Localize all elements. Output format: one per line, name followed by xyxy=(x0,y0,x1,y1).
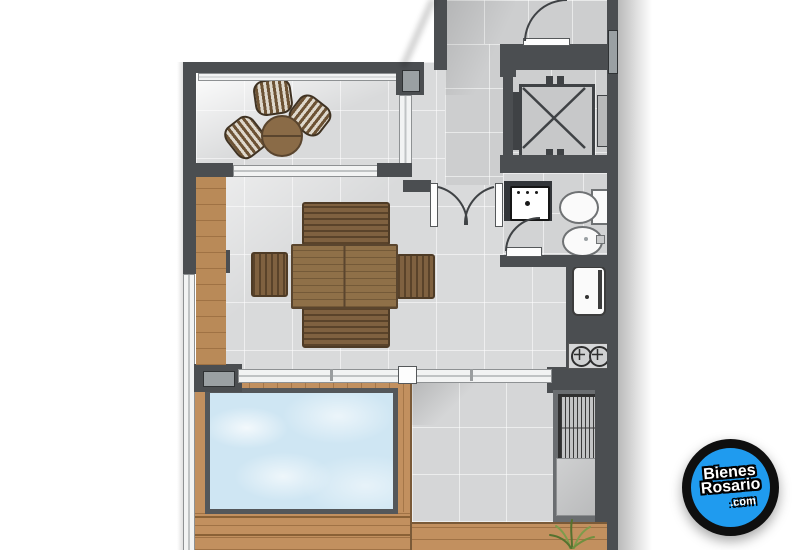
left-edge-shadow xyxy=(177,62,183,550)
burner-cross xyxy=(574,349,585,360)
entry-door-arc xyxy=(525,0,567,41)
double-door-arc xyxy=(465,187,494,225)
right-drop-shadow xyxy=(618,0,652,550)
bathroom-door-arc xyxy=(506,218,540,251)
linework-overlay xyxy=(0,0,800,550)
bienesrosario-watermark-logo: Bienes Rosario .com xyxy=(682,439,779,536)
floorplan-canvas: Bienes Rosario .com xyxy=(0,0,800,550)
logo-line3: .com xyxy=(723,493,762,510)
logo-text: Bienes Rosario .com xyxy=(699,463,762,512)
burner-cross xyxy=(592,349,603,360)
grass-plant-icon xyxy=(550,520,594,548)
double-door-arc xyxy=(438,187,467,225)
elevator-x xyxy=(523,88,585,148)
